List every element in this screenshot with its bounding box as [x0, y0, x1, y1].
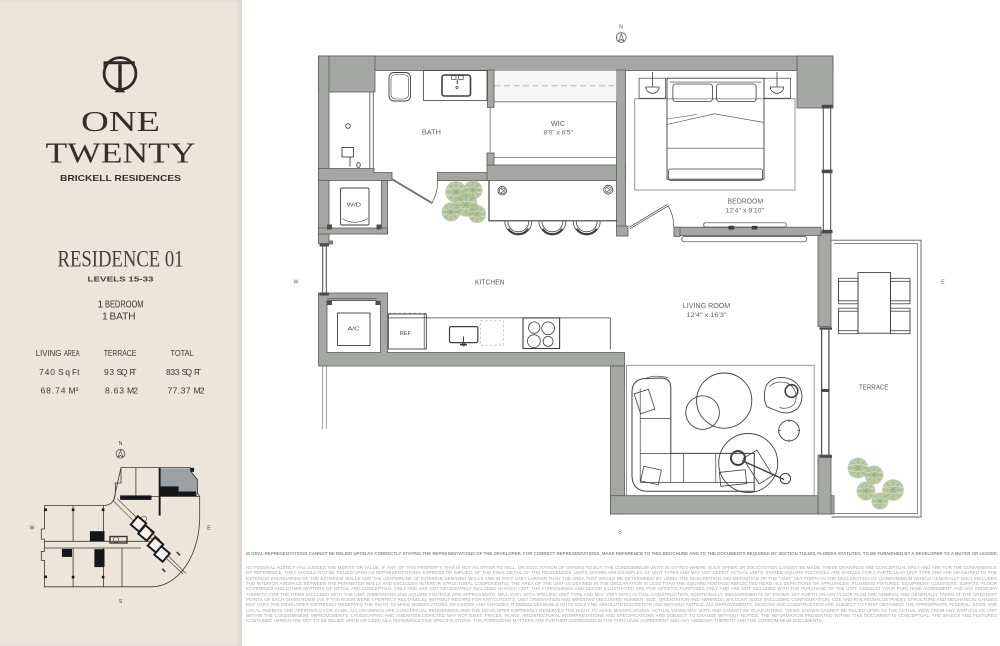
svg-text:KITCHEN: KITCHEN [475, 278, 505, 287]
svg-text:RESIDENCE 01: RESIDENCE 01 [58, 246, 184, 271]
svg-text:8.63: 8.63 [105, 385, 124, 395]
svg-text:1: 1 [98, 299, 104, 310]
svg-text:Ft: Ft [72, 367, 80, 377]
svg-text:Sq: Sq [58, 367, 70, 377]
svg-text:FT: FT [194, 367, 202, 377]
svg-text:LIVING: LIVING [36, 348, 62, 358]
svg-text:WIC: WIC [551, 119, 566, 128]
svg-text:12'4" x 9'10": 12'4" x 9'10" [725, 208, 764, 215]
svg-text:AREA: AREA [64, 348, 80, 358]
svg-text:N: N [619, 25, 623, 31]
svg-text:W: W [294, 280, 299, 286]
svg-text:TERRACE: TERRACE [859, 382, 889, 391]
svg-text:N: N [119, 441, 123, 447]
svg-text:1: 1 [102, 311, 108, 322]
svg-text:TOTAL: TOTAL [171, 348, 194, 358]
svg-text:12'4" x 16'3": 12'4" x 16'3" [687, 312, 727, 319]
svg-text:S: S [618, 530, 622, 536]
svg-text:BEDROOM: BEDROOM [105, 299, 144, 310]
svg-text:BEDROOM: BEDROOM [728, 197, 764, 206]
svg-text:W: W [30, 526, 35, 532]
svg-text:E: E [207, 526, 211, 532]
svg-text:77.37: 77.37 [168, 385, 191, 395]
svg-text:BATH: BATH [110, 311, 136, 322]
svg-text:M2: M2 [127, 385, 138, 395]
svg-text:TERRACE: TERRACE [104, 348, 137, 358]
svg-text:LIVING ROOM: LIVING ROOM [683, 301, 731, 310]
svg-text:REF: REF [400, 331, 412, 337]
svg-text:E: E [941, 280, 945, 286]
svg-text:740: 740 [39, 367, 55, 377]
svg-text:BATH: BATH [422, 127, 441, 136]
svg-text:FT: FT [130, 367, 138, 377]
svg-text:BRICKELL RESIDENCES: BRICKELL RESIDENCES [60, 174, 182, 183]
svg-text:68.74: 68.74 [41, 385, 66, 395]
svg-text:A/C: A/C [348, 326, 360, 332]
svg-text:833: 833 [166, 367, 180, 377]
svg-text:93: 93 [104, 367, 114, 377]
svg-text:8'0" x 6'5": 8'0" x 6'5" [544, 130, 573, 137]
svg-text:LEVELS 15-33: LEVELS 15-33 [88, 274, 154, 283]
svg-text:SQ: SQ [117, 367, 128, 377]
svg-text:ONE: ONE [81, 107, 160, 138]
svg-text:SQ: SQ [182, 367, 193, 377]
svg-text:M²: M² [69, 385, 79, 395]
svg-text:M2: M2 [194, 385, 205, 395]
svg-text:TWENTY: TWENTY [46, 139, 196, 170]
svg-text:S: S [119, 599, 123, 605]
svg-text:W/D: W/D [347, 203, 362, 209]
